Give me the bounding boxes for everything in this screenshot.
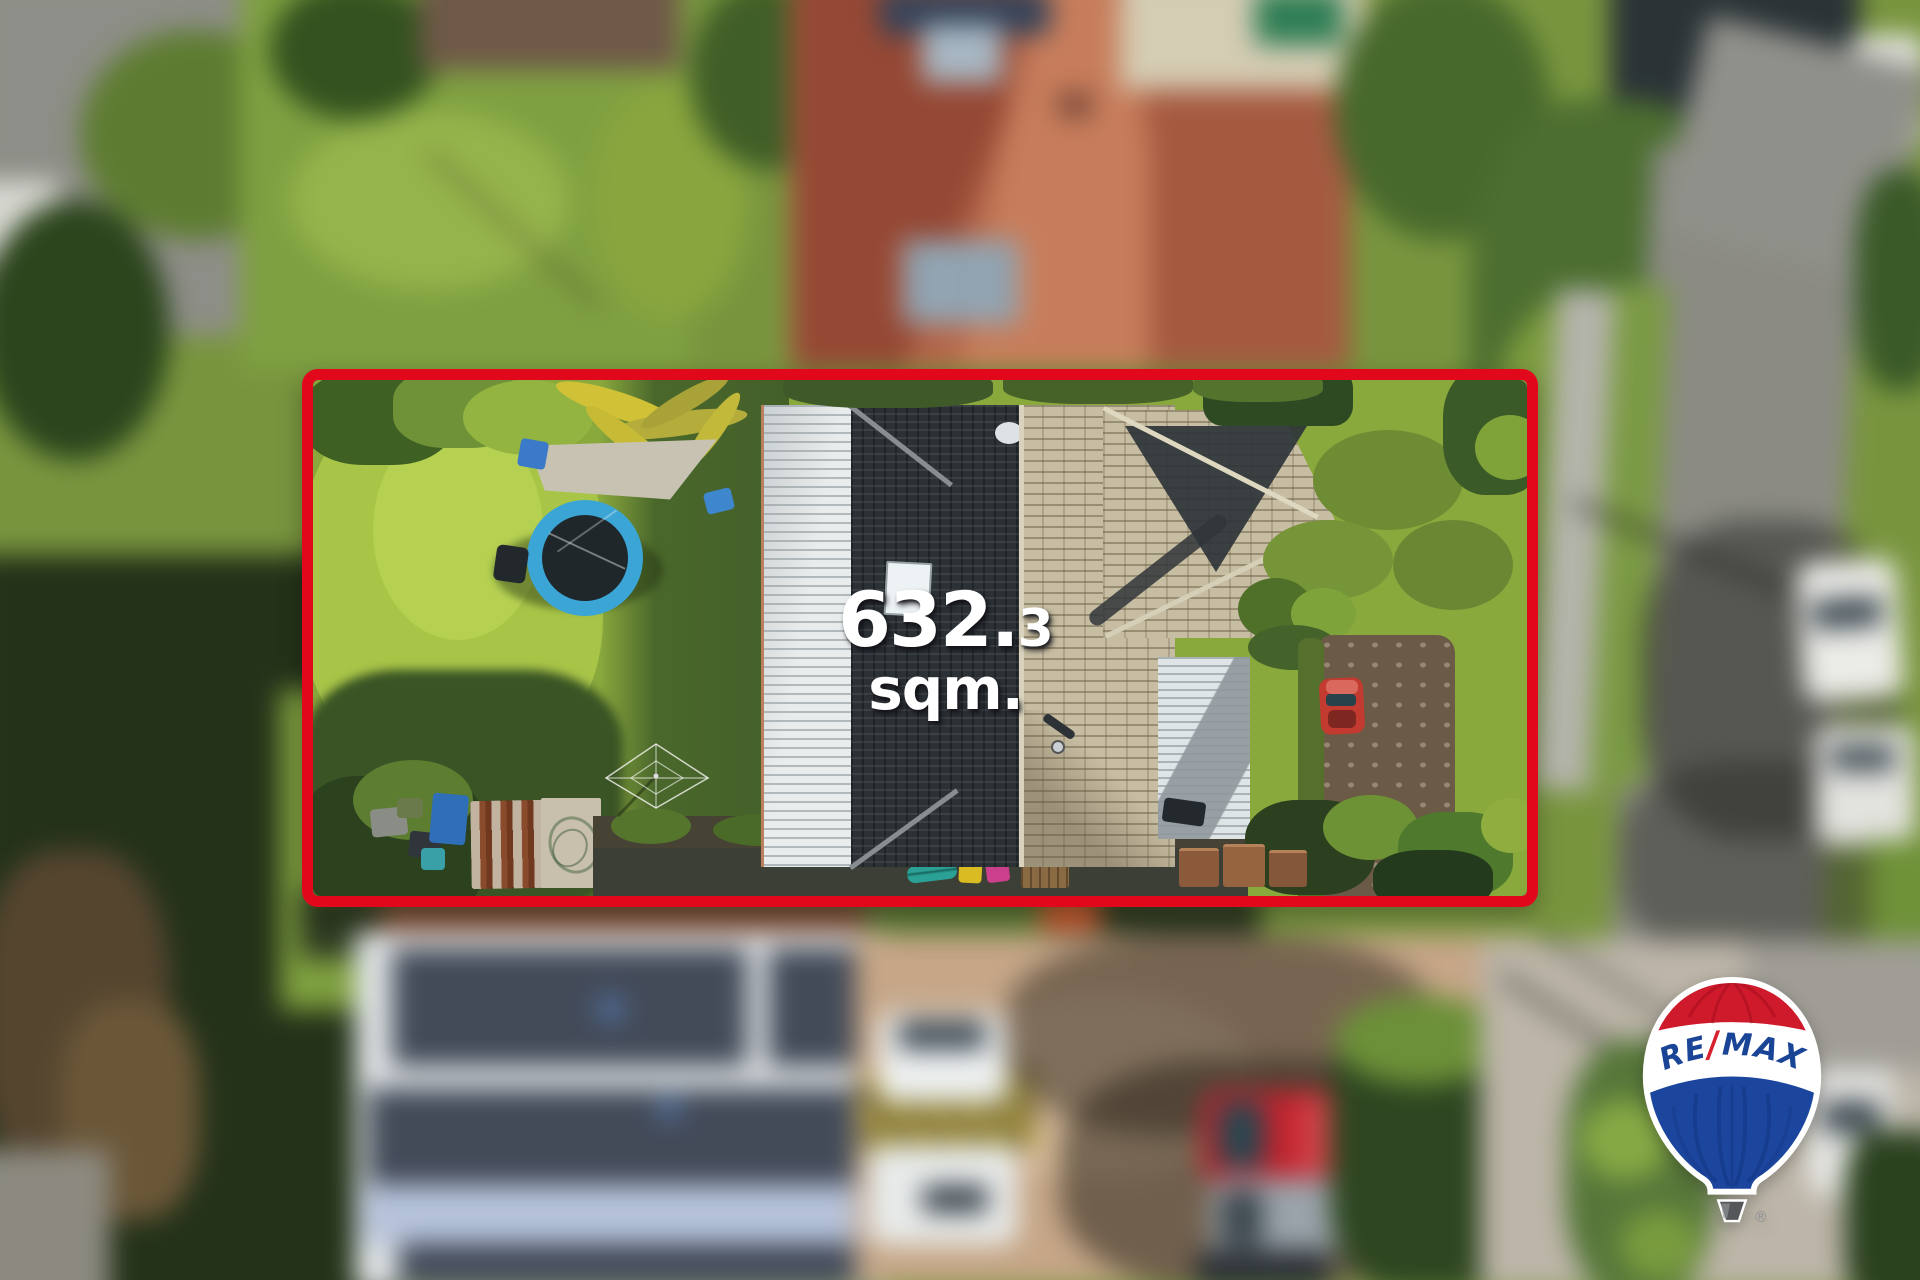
roof-vent — [600, 1000, 620, 1018]
car-windshield — [1222, 1190, 1262, 1246]
area-value-main: 632. — [838, 575, 1018, 664]
aerial-photo-stage: 632.3 sqm. RE/MAX — [0, 0, 1920, 1280]
tree-canopy — [1855, 170, 1920, 390]
parked-car-white — [1815, 725, 1915, 845]
blue-awning — [362, 1185, 880, 1243]
remax-balloon-logo: RE/MAX ® — [1634, 974, 1830, 1231]
paving-corner — [0, 1150, 110, 1280]
skylight-pair — [922, 25, 1002, 83]
area-unit: sqm. — [828, 660, 1063, 718]
registered-trademark-symbol: ® — [1754, 1209, 1769, 1226]
neighbour-roof-edge — [420, 0, 680, 70]
car-windshield — [1811, 596, 1883, 631]
area-value: 632.3 — [828, 582, 1063, 658]
tree-corner-bottom-right — [1845, 1130, 1920, 1280]
car-windshield — [1218, 1102, 1264, 1168]
area-label: 632.3 sqm. — [828, 582, 1063, 718]
roof-window — [903, 240, 1019, 324]
van-windshield — [922, 1185, 988, 1213]
car-windshield — [1830, 745, 1895, 771]
lawn-sunlit-patch — [290, 110, 570, 290]
chimney — [1058, 92, 1092, 118]
roof-vent — [660, 1100, 678, 1116]
solar-panel-row — [368, 1088, 880, 1186]
car-windshield — [898, 1020, 986, 1050]
area-value-decimal: 3 — [1018, 599, 1053, 659]
solar-panel-row — [392, 948, 747, 1066]
car-windshield — [1822, 1100, 1880, 1134]
parked-car-white — [1795, 557, 1905, 704]
parked-car-dark — [1196, 1250, 1330, 1280]
solar-panel-row — [398, 1243, 880, 1280]
green-dumpster — [1255, 0, 1343, 45]
